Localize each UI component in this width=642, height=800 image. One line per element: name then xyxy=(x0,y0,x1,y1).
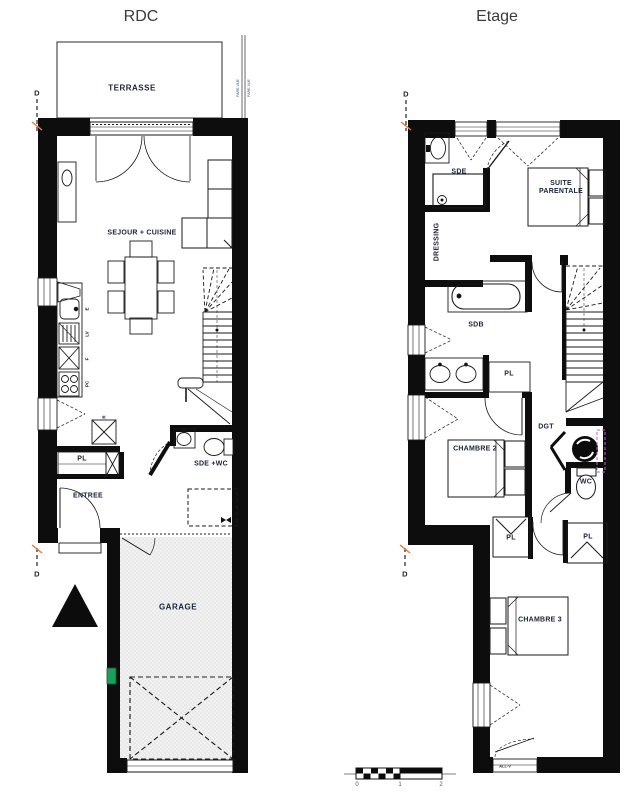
plan-drawing xyxy=(0,0,642,800)
floor-plan-sheet: RDC Etage TERRASSE PARE-VUE PARE-VUE SEJ… xyxy=(0,0,642,800)
label-plaque-cuisson: PC xyxy=(85,381,90,387)
label-pare-vue-a: PARE-VUE xyxy=(236,79,240,97)
etage-section-marker-top: D xyxy=(403,90,409,99)
rdc-section-marker-bottom: D xyxy=(34,570,40,579)
rdc-sde-wc xyxy=(150,429,237,526)
rdc-console xyxy=(58,162,76,222)
etage-sde xyxy=(425,133,509,208)
label-dgt: DGT xyxy=(538,424,554,431)
label-pl-chambre-3: PL xyxy=(583,534,592,541)
label-pl-sdb: PL xyxy=(504,371,513,378)
etage-staircase xyxy=(566,266,603,412)
scale-tick-2: 2 xyxy=(439,782,442,788)
scale-tick-1: 1 xyxy=(398,782,401,788)
rdc-pare-vue-fence xyxy=(242,35,245,120)
etage-window-sdb xyxy=(408,325,452,355)
scale-bar xyxy=(344,768,456,779)
scale-tick-0: 0 xyxy=(355,782,358,788)
rdc-staircase xyxy=(178,268,232,424)
label-terrasse: TERRASSE xyxy=(108,84,156,93)
rdc-terrasse-outline xyxy=(57,42,222,118)
etage-window-chambre2 xyxy=(408,395,458,440)
label-pl-chambre-2: PL xyxy=(506,535,515,542)
label-lave-vaisselle: LV xyxy=(85,331,90,336)
label-chambre-3: CHAMBRE 3 xyxy=(518,617,562,624)
etage-window-chambre3 xyxy=(473,683,520,727)
label-pare-vue-b: PARE-VUE xyxy=(247,79,251,97)
rdc-french-door-swing xyxy=(96,136,190,182)
label-suite-parentale: SUITE PARENTALE xyxy=(530,180,592,196)
rdc-section-marker-top: D xyxy=(34,89,40,98)
rdc-entrance-arrow xyxy=(52,584,98,627)
label-sde-wc: SDE +WC xyxy=(194,461,228,468)
label-wc: WC xyxy=(580,479,592,486)
rdc-title: RDC xyxy=(124,8,159,26)
rdc-plan xyxy=(32,35,248,773)
rdc-sofa xyxy=(182,160,232,248)
rdc-garage-floor xyxy=(120,537,232,760)
label-dressing: DRESSING xyxy=(434,223,441,262)
rdc-window-entree xyxy=(38,398,85,430)
label-refrigerateur: R xyxy=(102,415,107,418)
label-sdb: SDB xyxy=(468,322,484,329)
label-all-v: ALL-V xyxy=(499,764,511,769)
rdc-dining-table xyxy=(108,241,174,334)
label-pl-rdc: PL xyxy=(77,456,86,463)
etage-plan xyxy=(400,100,620,773)
label-sde: SDE xyxy=(451,169,466,176)
rdc-window-kitchen xyxy=(38,278,80,306)
etage-sdb xyxy=(425,281,530,392)
etage-title: Etage xyxy=(476,8,518,26)
label-garage: GARAGE xyxy=(159,603,197,612)
label-evier: E xyxy=(85,307,90,310)
label-sejour-cuisine: SEJOUR + CUISINE xyxy=(107,230,176,237)
label-four: F xyxy=(85,358,90,361)
garage-wall-marker-green xyxy=(107,668,116,684)
etage-section-marker-bottom: D xyxy=(402,570,408,579)
label-chambre-2: CHAMBRE 2 xyxy=(453,446,497,453)
rdc-bay-window xyxy=(90,122,193,135)
label-entree: ENTREE xyxy=(73,493,103,500)
